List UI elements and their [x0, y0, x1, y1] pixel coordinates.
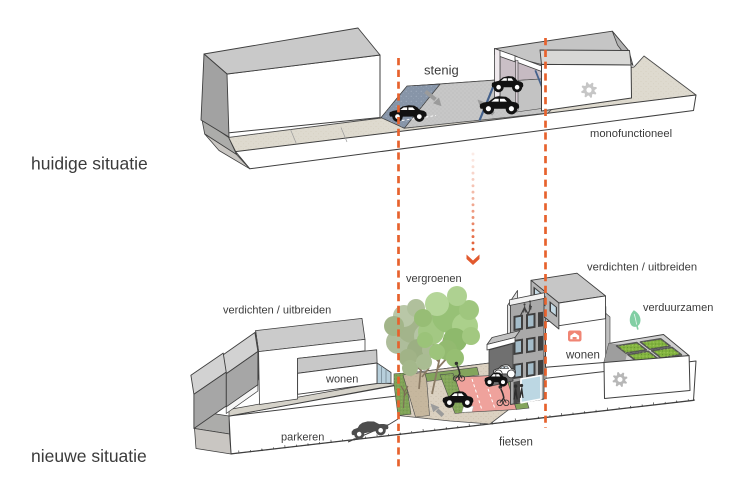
svg-text:huidige situatie: huidige situatie: [31, 154, 148, 174]
svg-text:parkeren: parkeren: [281, 432, 324, 444]
svg-text:verduurzamen: verduurzamen: [643, 302, 713, 314]
svg-text:nieuwe situatie: nieuwe situatie: [31, 446, 147, 466]
svg-text:stenig: stenig: [424, 63, 459, 78]
svg-text:verdichten / uitbreiden: verdichten / uitbreiden: [223, 305, 331, 317]
svg-text:wonen: wonen: [325, 374, 358, 386]
svg-text:monofunctioneel: monofunctioneel: [590, 128, 672, 140]
svg-text:verdichten / uitbreiden: verdichten / uitbreiden: [587, 262, 697, 274]
svg-text:wonen: wonen: [565, 350, 600, 362]
svg-text:vergroenen: vergroenen: [406, 273, 462, 285]
svg-text:fietsen: fietsen: [499, 437, 533, 449]
